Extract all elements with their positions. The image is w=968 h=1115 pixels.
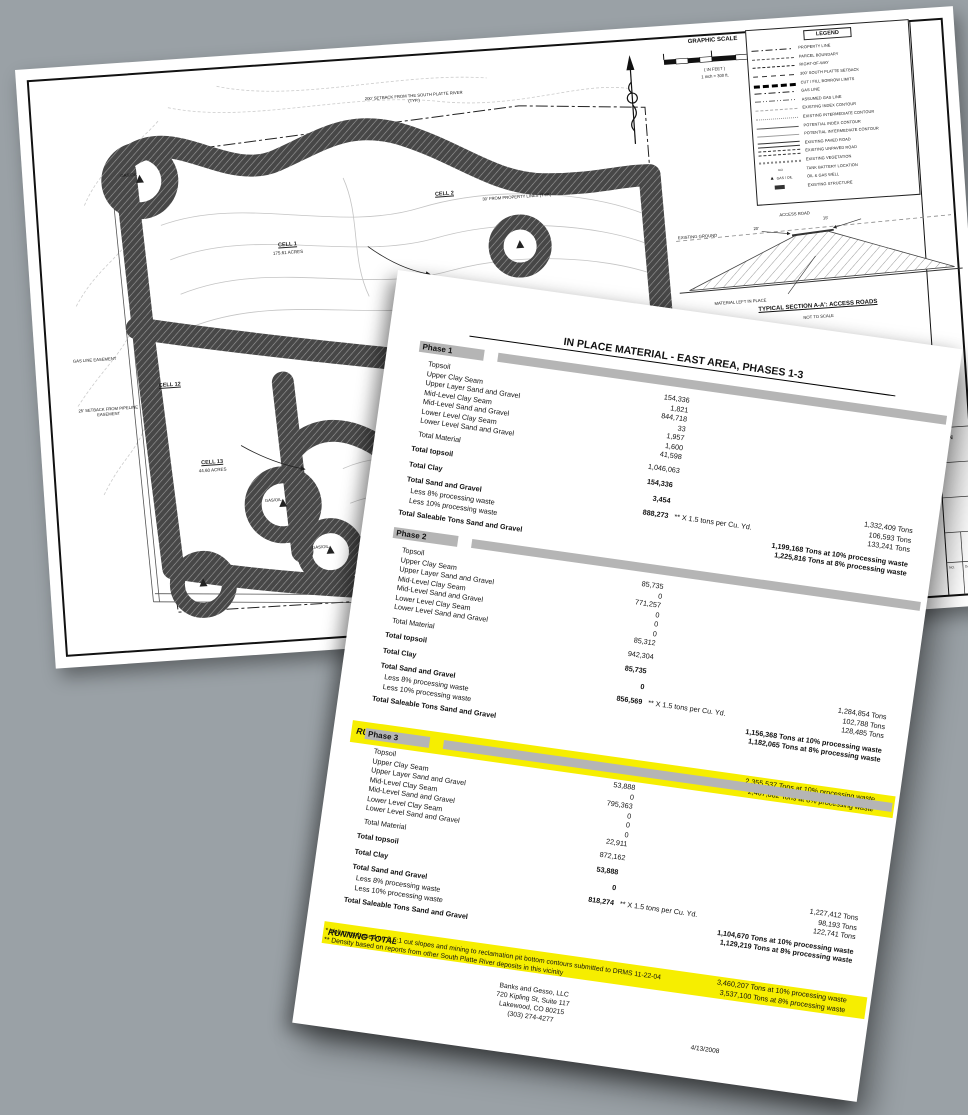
phase-name: Phase 2 — [393, 527, 459, 547]
legend-item-label: PROPERTY LINE — [798, 44, 830, 50]
legend-box: LEGEND PROPERTY LINE PARCEL BOUNDARY RIG… — [745, 19, 921, 206]
phase-name: Phase 1 — [419, 341, 485, 361]
well-symbol-label: GAS / OIL — [777, 176, 793, 181]
legend-item-label: OIL & GAS WELL — [807, 172, 839, 178]
legend-item-label: EXISTING STRUCTURE — [808, 180, 853, 187]
section-dim-left: 20' — [753, 226, 759, 231]
typical-section-drawing — [676, 212, 964, 301]
legend-title: LEGEND — [803, 27, 852, 40]
legend-item-label: RIGHT-OF-WAY — [799, 61, 829, 67]
section-dim-right: 15' — [823, 215, 829, 220]
title-block-rev-label: NO. — [949, 565, 955, 569]
report-date: 4/13/2008 — [690, 1044, 720, 1055]
legend-item-label: GAS LINE — [801, 88, 820, 93]
material-report-sheet: IN PLACE MATERIAL - EAST AREA, PHASES 1-… — [292, 270, 962, 1102]
running-total-values: 3,460,207 Tons at 10% processing waste 3… — [715, 977, 847, 1015]
photo-of-documents: { "page": { "background": "#9aa1a6" }, "… — [0, 0, 968, 1115]
existing-structure-sample — [761, 181, 803, 192]
north-arrow-icon — [624, 55, 640, 144]
